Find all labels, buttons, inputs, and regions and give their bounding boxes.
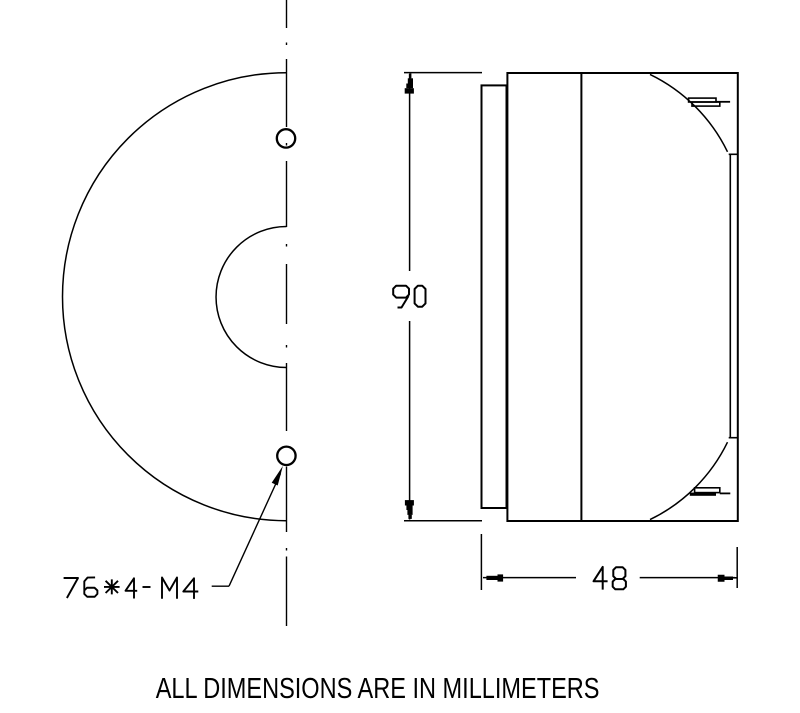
- svg-text:ALL DIMENSIONS ARE IN MILLIMET: ALL DIMENSIONS ARE IN MILLIMETERS: [156, 673, 600, 705]
